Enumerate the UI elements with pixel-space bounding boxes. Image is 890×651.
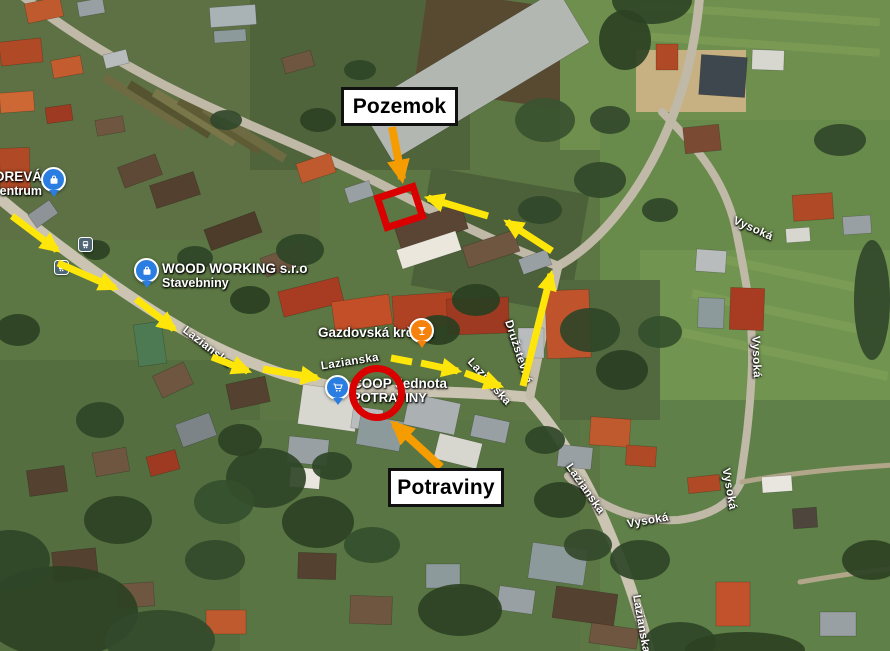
route-arrows-yellow	[12, 198, 552, 386]
pozemok-callout-arrow	[392, 127, 402, 179]
route-arrow	[12, 216, 57, 250]
route-arrow	[136, 299, 174, 329]
route-arrow	[212, 357, 248, 371]
route-dash	[391, 358, 412, 362]
route-arrow	[507, 222, 552, 251]
route-arrow	[523, 274, 551, 386]
potraviny-callout-arrow	[394, 424, 441, 467]
pozemok-callout: Pozemok	[341, 87, 458, 126]
satellite-map: Lazianska Lazianska Lazianska Lazianska …	[0, 0, 890, 651]
pozemok-callout-text: Pozemok	[353, 95, 447, 119]
potraviny-highlight-circle	[349, 365, 405, 421]
potraviny-callout: Potraviny	[388, 468, 504, 507]
route-arrow	[58, 263, 115, 288]
callout-arrows-orange	[392, 127, 441, 467]
route-arrow	[263, 369, 317, 378]
route-arrow	[421, 363, 458, 371]
potraviny-callout-text: Potraviny	[397, 476, 495, 500]
route-arrow	[428, 198, 488, 216]
route-arrow	[465, 373, 500, 386]
